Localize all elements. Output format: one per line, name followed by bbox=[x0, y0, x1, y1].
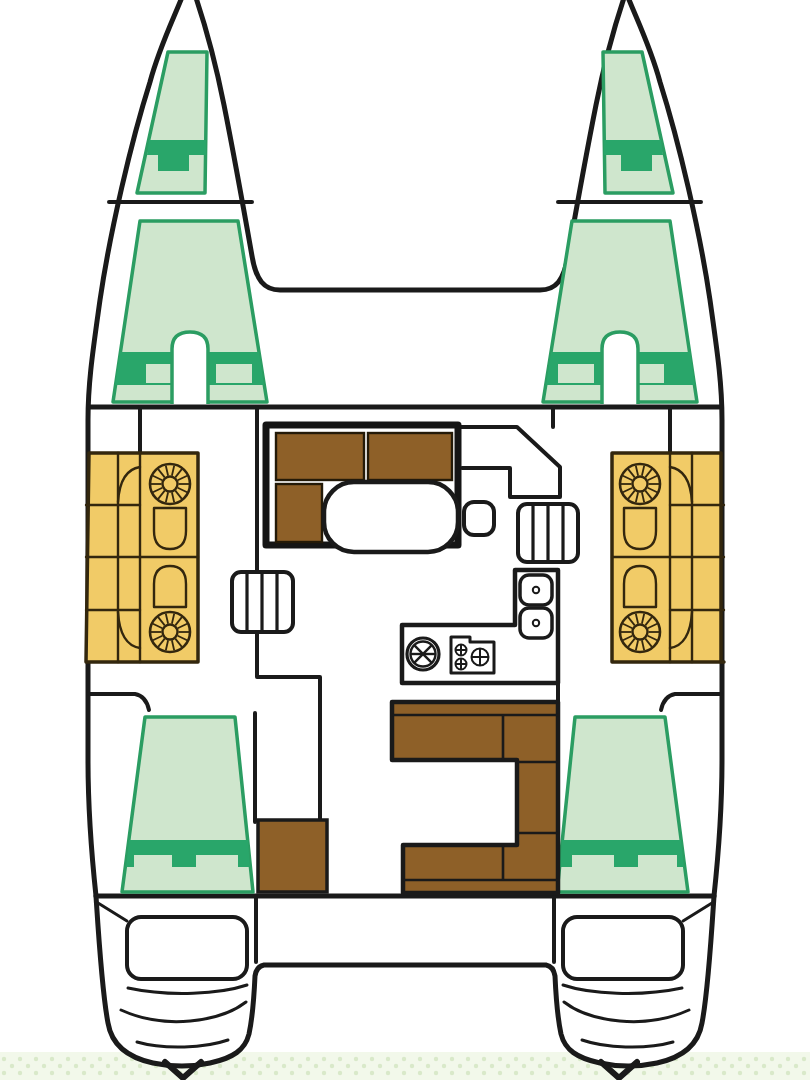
water-dot bbox=[306, 1057, 310, 1061]
water-dot bbox=[674, 1071, 678, 1075]
water-dot bbox=[450, 1071, 454, 1075]
water-dot bbox=[354, 1071, 358, 1075]
berth-pillow-band bbox=[147, 140, 206, 155]
water-dot bbox=[298, 1064, 302, 1068]
water-dot bbox=[418, 1071, 422, 1075]
water-dot bbox=[410, 1064, 414, 1068]
walkway-cutout bbox=[602, 332, 638, 404]
starboard-forward-cabin-berth bbox=[543, 221, 697, 404]
water-dot bbox=[738, 1071, 742, 1075]
port-transom-engine-hatch bbox=[127, 917, 247, 979]
water-dot bbox=[226, 1071, 230, 1075]
water-dot bbox=[762, 1064, 766, 1068]
water-dot bbox=[570, 1064, 574, 1068]
sofa-cushion bbox=[276, 433, 364, 480]
water-dot bbox=[714, 1064, 718, 1068]
water-dot bbox=[114, 1057, 118, 1061]
water-dot bbox=[426, 1064, 430, 1068]
water-dot bbox=[482, 1057, 486, 1061]
water-dot bbox=[362, 1064, 366, 1068]
water-dot bbox=[778, 1064, 782, 1068]
water-dot bbox=[370, 1057, 374, 1061]
water-dot bbox=[738, 1057, 742, 1061]
water-dot bbox=[498, 1057, 502, 1061]
water-dot bbox=[162, 1071, 166, 1075]
port-aft-locker bbox=[258, 820, 327, 892]
water-dot bbox=[338, 1057, 342, 1061]
salon-stool bbox=[464, 502, 494, 535]
water-dot bbox=[138, 1064, 142, 1068]
water-dot bbox=[722, 1071, 726, 1075]
water-texture-band bbox=[0, 1052, 810, 1080]
water-dot bbox=[434, 1057, 438, 1061]
water-dot bbox=[466, 1057, 470, 1061]
water-dot bbox=[562, 1057, 566, 1061]
water-dot bbox=[250, 1064, 254, 1068]
pillow-notch bbox=[134, 855, 172, 867]
water-dot bbox=[290, 1071, 294, 1075]
water-dot bbox=[314, 1064, 318, 1068]
water-dot bbox=[698, 1064, 702, 1068]
berth-pillow-tab bbox=[158, 155, 189, 171]
port-companionway-steps bbox=[232, 572, 293, 632]
water-dot bbox=[682, 1064, 686, 1068]
water-dot bbox=[114, 1071, 118, 1075]
water-dot bbox=[770, 1057, 774, 1061]
salon-table bbox=[324, 482, 458, 552]
water-dot bbox=[242, 1071, 246, 1075]
water-dot bbox=[802, 1057, 806, 1061]
water-dot bbox=[458, 1064, 462, 1068]
water-dot bbox=[578, 1071, 582, 1075]
water-dot bbox=[258, 1071, 262, 1075]
water-dot bbox=[554, 1064, 558, 1068]
port-forward-cabin-berth bbox=[113, 221, 267, 404]
pillow-notch bbox=[196, 855, 238, 867]
water-dot bbox=[658, 1071, 662, 1075]
water-dot bbox=[642, 1071, 646, 1075]
pillow-notch bbox=[216, 364, 252, 383]
berth-pillow-tab bbox=[621, 155, 652, 171]
water-dot bbox=[794, 1064, 798, 1068]
water-dot bbox=[218, 1064, 222, 1068]
water-dot bbox=[90, 1064, 94, 1068]
pillow-notch bbox=[558, 364, 594, 383]
water-dot bbox=[402, 1057, 406, 1061]
water-dot bbox=[506, 1064, 510, 1068]
water-dot bbox=[26, 1064, 30, 1068]
water-dot bbox=[418, 1057, 422, 1061]
shower-icon bbox=[620, 464, 660, 504]
water-dot bbox=[514, 1071, 518, 1075]
water-dot bbox=[82, 1071, 86, 1075]
water-dot bbox=[130, 1071, 134, 1075]
water-dot bbox=[122, 1064, 126, 1068]
water-dot bbox=[66, 1071, 70, 1075]
starboard-aft-cabin-berth bbox=[557, 717, 688, 892]
water-dot bbox=[50, 1071, 54, 1075]
water-dot bbox=[522, 1064, 526, 1068]
sofa-cushion bbox=[276, 484, 322, 542]
water-dot bbox=[306, 1071, 310, 1075]
water-dot bbox=[34, 1071, 38, 1075]
water-dot bbox=[442, 1064, 446, 1068]
water-dot bbox=[378, 1064, 382, 1068]
water-dot bbox=[514, 1057, 518, 1061]
water-dot bbox=[282, 1064, 286, 1068]
water-dot bbox=[530, 1057, 534, 1061]
water-dot bbox=[2, 1057, 6, 1061]
water-dot bbox=[594, 1071, 598, 1075]
water-dot bbox=[562, 1071, 566, 1075]
water-dot bbox=[2, 1071, 6, 1075]
water-dot bbox=[258, 1057, 262, 1061]
starboard-companionway-steps bbox=[518, 504, 578, 562]
water-dot bbox=[234, 1064, 238, 1068]
water-dot bbox=[530, 1071, 534, 1075]
water-dot bbox=[370, 1071, 374, 1075]
water-dot bbox=[482, 1071, 486, 1075]
water-dot bbox=[730, 1064, 734, 1068]
water-dot bbox=[322, 1071, 326, 1075]
water-dot bbox=[330, 1064, 334, 1068]
starboard-transom-engine-hatch bbox=[563, 917, 683, 979]
floor-plan-svg bbox=[0, 0, 810, 1080]
water-dot bbox=[394, 1064, 398, 1068]
water-dot bbox=[82, 1057, 86, 1061]
water-dot bbox=[74, 1064, 78, 1068]
water-dot bbox=[754, 1071, 758, 1075]
water-dot bbox=[690, 1071, 694, 1075]
salon bbox=[266, 425, 494, 552]
water-dot bbox=[274, 1057, 278, 1061]
water-dot bbox=[98, 1057, 102, 1061]
sofa-cushion bbox=[368, 433, 452, 480]
water-dot bbox=[450, 1057, 454, 1061]
water-dot bbox=[666, 1064, 670, 1068]
water-dot bbox=[754, 1057, 758, 1061]
shower-icon bbox=[150, 612, 190, 652]
water-dot bbox=[266, 1064, 270, 1068]
water-dot bbox=[722, 1057, 726, 1061]
water-dot bbox=[770, 1071, 774, 1075]
water-dot bbox=[50, 1057, 54, 1061]
water-dot bbox=[146, 1071, 150, 1075]
water-dot bbox=[802, 1071, 806, 1075]
water-dot bbox=[786, 1071, 790, 1075]
shower-icon bbox=[620, 612, 660, 652]
catamaran-layout-plan bbox=[0, 0, 810, 1080]
water-dot bbox=[290, 1057, 294, 1061]
water-dot bbox=[690, 1057, 694, 1061]
water-dot bbox=[274, 1071, 278, 1075]
water-dot bbox=[498, 1071, 502, 1075]
water-dot bbox=[386, 1057, 390, 1061]
water-dot bbox=[474, 1064, 478, 1068]
water-dot bbox=[10, 1064, 14, 1068]
berth-pillow-band bbox=[604, 140, 663, 155]
water-dot bbox=[58, 1064, 62, 1068]
water-dot bbox=[434, 1071, 438, 1075]
water-dot bbox=[786, 1057, 790, 1061]
water-dot bbox=[538, 1064, 542, 1068]
pillow-notch bbox=[572, 855, 614, 867]
water-dot bbox=[706, 1071, 710, 1075]
water-dot bbox=[66, 1057, 70, 1061]
water-dot bbox=[546, 1057, 550, 1061]
shower-icon bbox=[150, 464, 190, 504]
water-dot bbox=[490, 1064, 494, 1068]
port-aft-cabin-berth bbox=[122, 717, 253, 892]
water-dot bbox=[34, 1057, 38, 1061]
water-dot bbox=[322, 1057, 326, 1061]
water-dot bbox=[466, 1071, 470, 1075]
water-dot bbox=[586, 1064, 590, 1068]
water-dot bbox=[354, 1057, 358, 1061]
water-dot bbox=[746, 1064, 750, 1068]
water-dot bbox=[98, 1071, 102, 1075]
water-dot bbox=[18, 1057, 22, 1061]
water-dot bbox=[546, 1071, 550, 1075]
water-dot bbox=[346, 1064, 350, 1068]
walkway-cutout bbox=[172, 332, 208, 404]
water-dot bbox=[18, 1071, 22, 1075]
water-dot bbox=[106, 1064, 110, 1068]
water-dot bbox=[210, 1071, 214, 1075]
water-dot bbox=[706, 1057, 710, 1061]
water-dot bbox=[242, 1057, 246, 1061]
water-dot bbox=[386, 1071, 390, 1075]
water-dot bbox=[42, 1064, 46, 1068]
water-dot bbox=[402, 1071, 406, 1075]
water-dot bbox=[338, 1071, 342, 1075]
pillow-notch bbox=[638, 855, 677, 867]
